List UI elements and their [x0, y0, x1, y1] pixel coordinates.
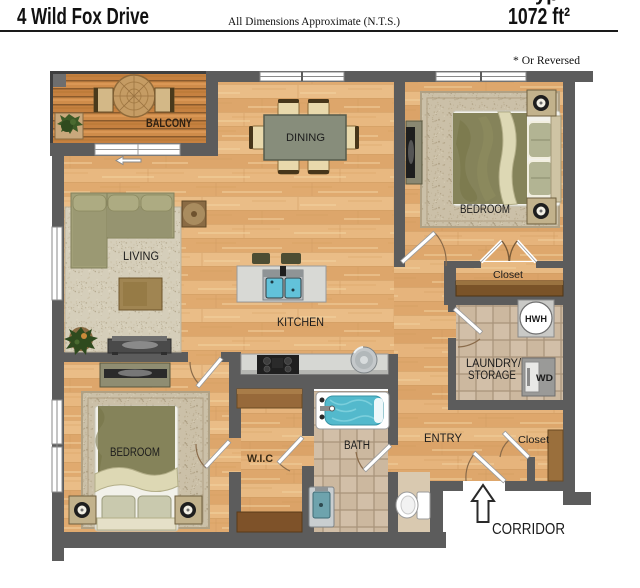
- svg-text:Closet: Closet: [493, 270, 523, 281]
- svg-text:1072 ft²: 1072 ft²: [508, 3, 570, 29]
- svg-text:HWH: HWH: [525, 314, 547, 324]
- svg-text:BEDROOM: BEDROOM: [460, 202, 510, 216]
- svg-text:4 Wild Fox Drive: 4 Wild Fox Drive: [17, 3, 149, 29]
- svg-text:* Or Reversed: * Or Reversed: [513, 53, 580, 67]
- svg-text:DINING: DINING: [286, 132, 325, 144]
- svg-text:All Dimensions Approximate (N.: All Dimensions Approximate (N.T.S.): [228, 14, 400, 28]
- svg-text:BALCONY: BALCONY: [146, 116, 192, 130]
- svg-text:CORRIDOR: CORRIDOR: [492, 521, 565, 538]
- svg-text:W.I.C: W.I.C: [247, 453, 273, 465]
- svg-text:STORAGE: STORAGE: [468, 370, 516, 382]
- svg-text:WD: WD: [536, 373, 554, 383]
- svg-text:KITCHEN: KITCHEN: [277, 315, 324, 329]
- svg-text:LIVING: LIVING: [123, 249, 159, 263]
- svg-text:BATH: BATH: [344, 440, 370, 452]
- svg-text:BEDROOM: BEDROOM: [110, 445, 160, 459]
- svg-text:ENTRY: ENTRY: [424, 431, 462, 445]
- svg-text:LAUNDRY/: LAUNDRY/: [466, 358, 522, 370]
- svg-text:Closet: Closet: [518, 435, 549, 446]
